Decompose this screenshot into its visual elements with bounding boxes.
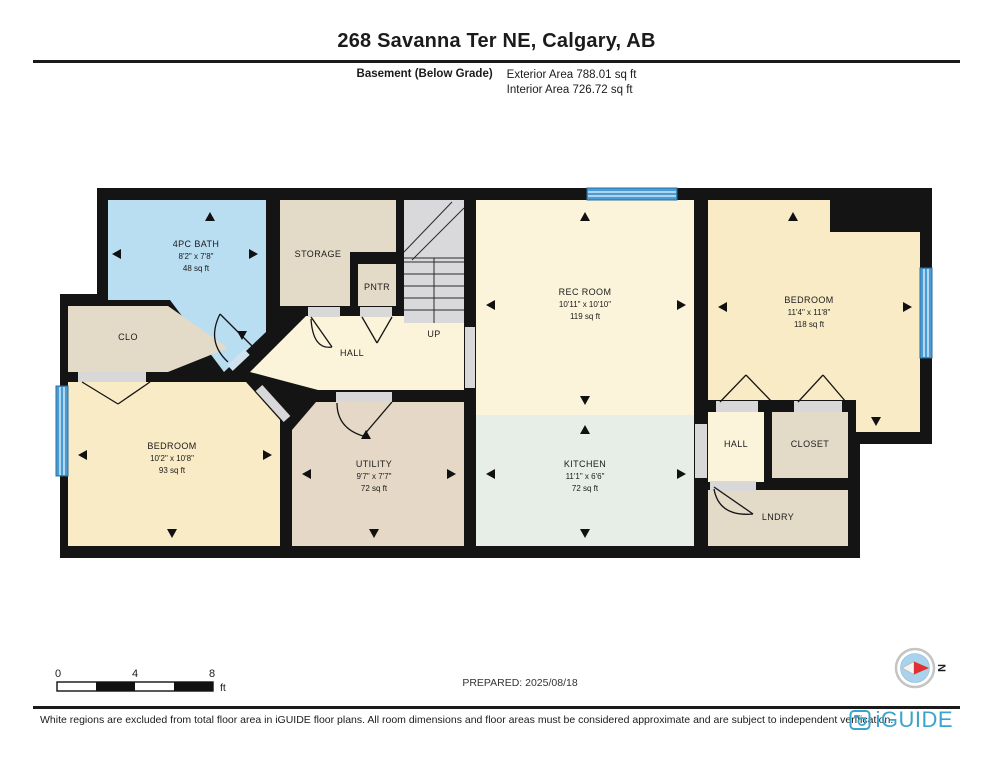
svg-text:118 sq ft: 118 sq ft — [794, 320, 825, 329]
svg-text:72 sq ft: 72 sq ft — [361, 484, 388, 493]
compass-icon: N — [896, 649, 947, 687]
iguide-logo-text: iGUIDE — [875, 707, 953, 733]
label-hall: HALL — [340, 348, 364, 358]
disclaimer-text: White regions are excluded from total fl… — [40, 714, 893, 726]
label-bath: 4PC BATH — [173, 239, 220, 249]
label-laundry: LNDRY — [762, 512, 794, 522]
label-kitchen: KITCHEN — [564, 459, 606, 469]
svg-text:48 sq ft: 48 sq ft — [183, 264, 210, 273]
svg-text:11'1" x 6'6": 11'1" x 6'6" — [566, 472, 605, 481]
label-rec-room: REC ROOM — [559, 287, 612, 297]
room-bedroom-left — [68, 382, 280, 546]
label-closet-left: CLO — [118, 332, 138, 342]
svg-text:4: 4 — [132, 668, 138, 680]
svg-text:8'2" x 7'8": 8'2" x 7'8" — [179, 252, 214, 261]
window-top — [587, 188, 677, 200]
floor-plan: 4PC BATH 8'2" x 7'8" 48 sq ft STORAGE PN… — [0, 0, 993, 768]
label-hall-right: HALL — [724, 439, 748, 449]
label-bedroom-right: BEDROOM — [784, 295, 833, 305]
prepared-date: PREPARED: 2025/08/18 — [462, 677, 578, 689]
footer-divider — [33, 706, 960, 709]
svg-text:11'4" x 11'8": 11'4" x 11'8" — [788, 308, 831, 317]
scale-bar: 0 4 8 ft — [55, 668, 226, 694]
svg-text:93 sq ft: 93 sq ft — [159, 466, 186, 475]
iguide-logo: iGUIDE — [849, 707, 953, 733]
label-utility: UTILITY — [356, 459, 392, 469]
compass-north-label: N — [935, 664, 947, 672]
svg-text:119 sq ft: 119 sq ft — [570, 312, 601, 321]
svg-text:10'2" x 10'8": 10'2" x 10'8" — [150, 454, 194, 463]
label-closet-right: CLOSET — [791, 439, 830, 449]
label-pantry: PNTR — [364, 282, 390, 292]
svg-text:ft: ft — [220, 682, 226, 694]
staircase — [404, 200, 464, 323]
svg-text:10'11" x 10'10": 10'11" x 10'10" — [559, 300, 611, 309]
floorplan-page: 268 Savanna Ter NE, Calgary, AB Basement… — [0, 0, 993, 768]
label-stairs-up: UP — [427, 329, 440, 339]
window-left — [56, 386, 68, 476]
svg-text:0: 0 — [55, 668, 61, 680]
svg-text:8: 8 — [209, 668, 215, 680]
svg-text:9'7" x 7'7": 9'7" x 7'7" — [357, 472, 392, 481]
label-bedroom-left: BEDROOM — [147, 441, 196, 451]
svg-text:72 sq ft: 72 sq ft — [572, 484, 599, 493]
window-right — [920, 268, 932, 358]
label-storage: STORAGE — [295, 249, 342, 259]
iguide-logo-icon — [849, 709, 871, 731]
